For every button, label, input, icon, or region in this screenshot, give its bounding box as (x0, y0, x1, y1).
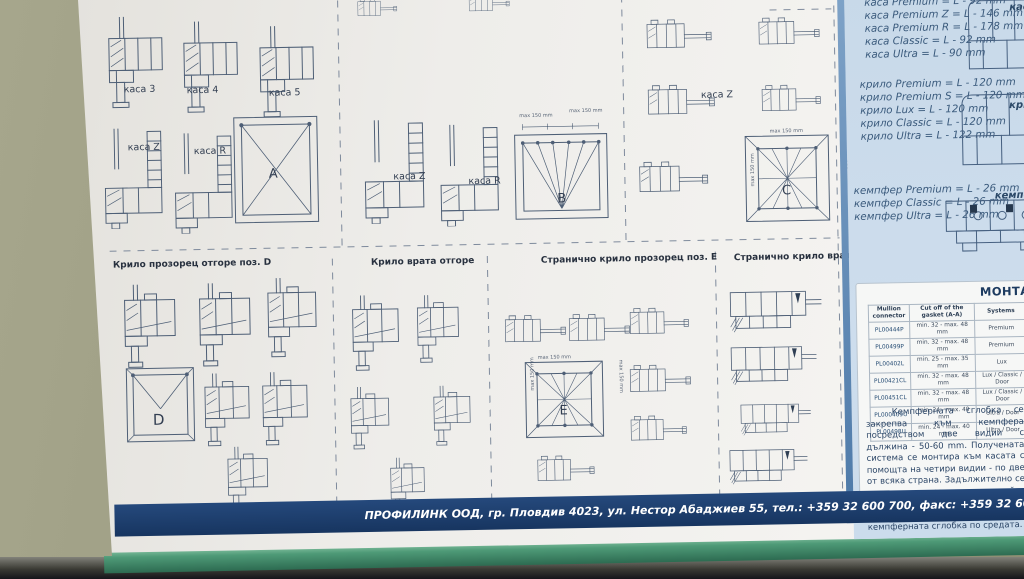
krilo-profile-label: крило (1009, 100, 1024, 112)
profile-section-drawing (757, 10, 820, 57)
diagram-d: D (125, 366, 196, 443)
profile-label: каса 4 (187, 85, 219, 97)
montage-title: МОНТАЖ НА СТА (856, 283, 1024, 301)
cell: Lux / Classic / Door (976, 387, 1024, 405)
diagram-letter: D (153, 411, 165, 429)
photo-of-technical-poster: каса 3 каса 4 каса 5 каса Z каса R A кас… (0, 0, 1024, 579)
kempfer-profile-label: кемпфер (995, 189, 1024, 201)
cell: PL00444P (869, 322, 910, 340)
profile-section-drawing (638, 148, 709, 211)
cell: min. 32 - max. 48 mm (911, 388, 976, 406)
diagram-b: B (512, 118, 610, 222)
column-header: Systems (974, 302, 1024, 320)
cell: min. 25 - max. 35 mm (910, 354, 975, 372)
profile-section-drawing (645, 12, 712, 61)
kasa-profile-label: каса (1009, 2, 1024, 13)
section-divider (337, 0, 343, 248)
section-heading-e: Странично крило прозорец поз. E (541, 253, 717, 266)
profile-label: каса R (468, 176, 500, 188)
cell: PL00402L (869, 356, 910, 374)
profile-section-drawing (180, 20, 242, 113)
column-header: Cut off of the gasket (A-A) (909, 303, 974, 321)
profile-section-drawing (467, 0, 511, 16)
profile-section-drawing (536, 449, 595, 492)
section-heading-door-top: Крило врата отгоре (371, 256, 475, 268)
profile-section-drawing (629, 355, 692, 406)
profile-label: каса Z (393, 171, 425, 183)
cell: PL00421CL (870, 373, 911, 391)
cell: min. 32 - max. 48 mm (911, 371, 976, 389)
diagram-letter: A (269, 167, 278, 182)
profile-section-drawing (350, 293, 409, 372)
profile-label: каса Z (128, 142, 160, 154)
cell: Premium (975, 319, 1024, 337)
section-divider (715, 252, 721, 506)
profile-section-drawing (432, 378, 479, 453)
profile-label: каса 5 (269, 87, 301, 99)
cell: min. 32 - max. 48 mm (910, 337, 975, 355)
profile-section-drawing (728, 443, 809, 490)
profile-section-drawing (260, 371, 319, 446)
profile-section-drawing (196, 282, 264, 367)
profile-section-drawing (357, 0, 397, 22)
profile-section-drawing (203, 371, 260, 448)
diagram-e: E (524, 360, 605, 439)
column-header: Mullion connector (868, 305, 909, 323)
diagram-letter: C (782, 183, 791, 198)
cell: Lux / Classic / Door (975, 370, 1024, 388)
profile-label: каса R (194, 146, 226, 158)
profile-section-drawing (504, 305, 567, 356)
profile-section-drawing (647, 74, 716, 131)
dim-label: max 150 mm (569, 108, 602, 115)
cell: Premium (975, 336, 1024, 354)
profile-section-drawing (630, 407, 688, 453)
section-divider (621, 0, 627, 243)
profile-section-drawing (256, 25, 320, 118)
profile-section-drawing (264, 277, 329, 358)
profile-section-drawing (739, 396, 812, 443)
profile-section-drawing (729, 340, 818, 392)
diagram-letter: E (559, 403, 567, 418)
profile-section-drawing (122, 283, 188, 368)
dim-label: max 150 mm (617, 360, 624, 393)
profile-section-drawing (728, 283, 823, 341)
montage-panel: МОНТАЖ НА СТА Mullion connector Cut off … (855, 278, 1024, 513)
profile-section-drawing (349, 377, 398, 458)
poster-sheet: каса 3 каса 4 каса 5 каса Z каса R A кас… (69, 0, 1024, 553)
diagram-letter: B (557, 191, 566, 206)
cell: Lux (975, 353, 1024, 371)
profile-section-drawing (760, 72, 821, 129)
profile-label: каса Z (701, 89, 733, 101)
section-heading-d: Крило прозорец отгоре поз. D (113, 258, 271, 271)
section-divider (487, 256, 493, 510)
profile-section-drawing (629, 295, 690, 351)
profile-section-drawing (568, 304, 631, 355)
diagram-a: A (232, 115, 320, 225)
profile-label: каса 3 (124, 84, 156, 96)
cell: PL00499P (869, 339, 910, 357)
cell: min. 32 - max. 48 mm (910, 320, 975, 338)
section-divider (110, 237, 840, 251)
profile-section-drawing (415, 290, 468, 367)
diagram-c: C (744, 133, 832, 223)
section-divider (332, 259, 338, 513)
cell: PL00451CL (870, 390, 911, 408)
